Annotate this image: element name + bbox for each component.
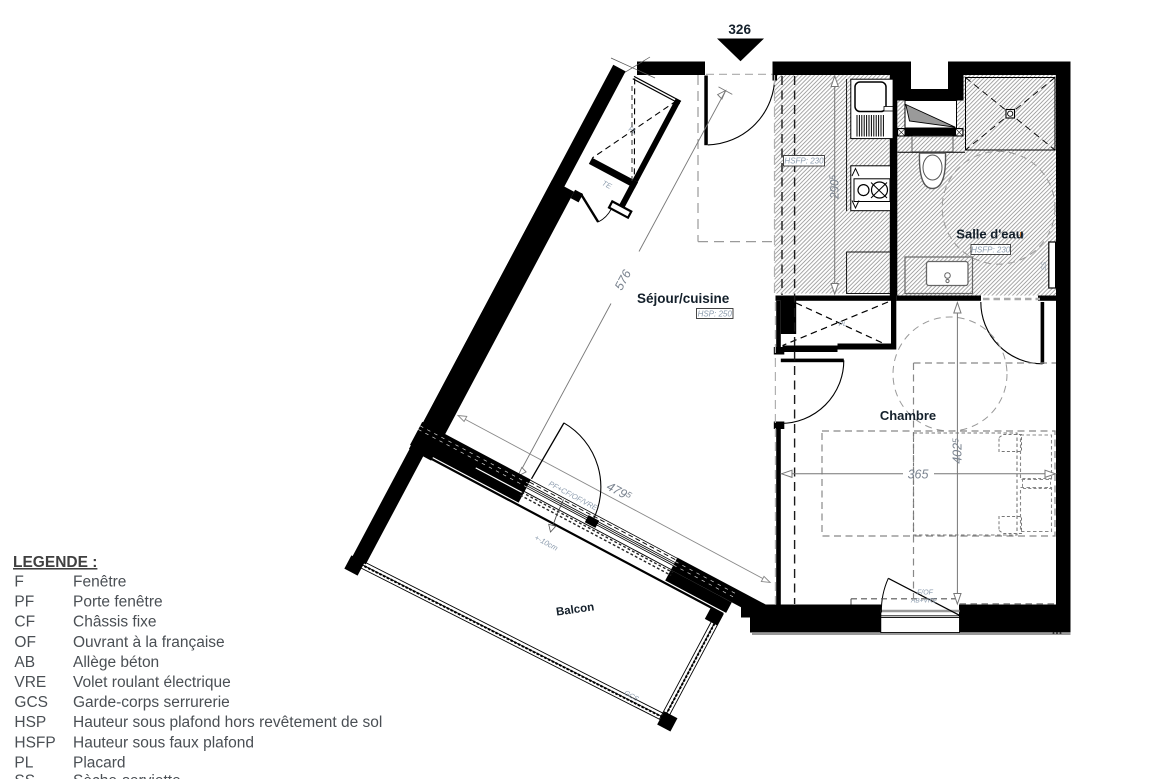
svg-text:SS: SS <box>14 773 35 779</box>
svg-text:HSFP: 230: HSFP: 230 <box>784 157 824 166</box>
svg-text:Volet roulant électrique: Volet roulant électrique <box>73 674 231 691</box>
svg-text:CF: CF <box>14 614 35 631</box>
svg-text:AB+VRE: AB+VRE <box>910 598 937 605</box>
svg-text:Chambre: Chambre <box>880 408 936 423</box>
svg-text:F/OF: F/OF <box>917 590 934 597</box>
svg-text:326: 326 <box>728 22 751 37</box>
svg-text:Ouvrant à la française: Ouvrant à la française <box>73 634 225 651</box>
svg-text:Séjour/cuisine: Séjour/cuisine <box>637 291 730 306</box>
svg-text:HSP: HSP <box>14 714 46 731</box>
svg-text:Sèche-serviette: Sèche-serviette <box>73 773 181 779</box>
svg-text:Porte fenêtre: Porte fenêtre <box>73 594 163 611</box>
svg-text:SS: SS <box>1041 261 1048 270</box>
svg-text:Salle d'eau: Salle d'eau <box>956 227 1023 242</box>
svg-text:AB: AB <box>14 654 35 671</box>
svg-text:Fenêtre: Fenêtre <box>73 574 126 591</box>
svg-text:Hauteur sous faux plafond: Hauteur sous faux plafond <box>73 734 254 751</box>
svg-text:PL: PL <box>14 754 33 771</box>
svg-text:Hauteur sous plafond hors revê: Hauteur sous plafond hors revêtement de … <box>73 714 382 731</box>
svg-text:Châssis fixe: Châssis fixe <box>73 614 157 631</box>
svg-text:HSP: 250: HSP: 250 <box>698 310 733 319</box>
svg-text:VRE: VRE <box>14 674 46 691</box>
svg-text:OF: OF <box>14 634 36 651</box>
svg-text:HSFP: HSFP <box>14 734 55 751</box>
svg-text:GCS: GCS <box>14 694 48 711</box>
svg-text:Placard: Placard <box>73 754 126 771</box>
svg-text:LEGENDE :: LEGENDE : <box>13 554 97 571</box>
svg-text:Allège béton: Allège béton <box>73 654 159 671</box>
svg-text:PF: PF <box>14 594 34 611</box>
svg-text:365: 365 <box>908 468 929 482</box>
svg-text:HSFP: 230: HSFP: 230 <box>971 246 1011 255</box>
svg-text:PL: PL <box>839 321 848 328</box>
svg-text:Garde-corps serrurerie: Garde-corps serrurerie <box>73 694 230 711</box>
svg-text:F: F <box>14 574 23 591</box>
